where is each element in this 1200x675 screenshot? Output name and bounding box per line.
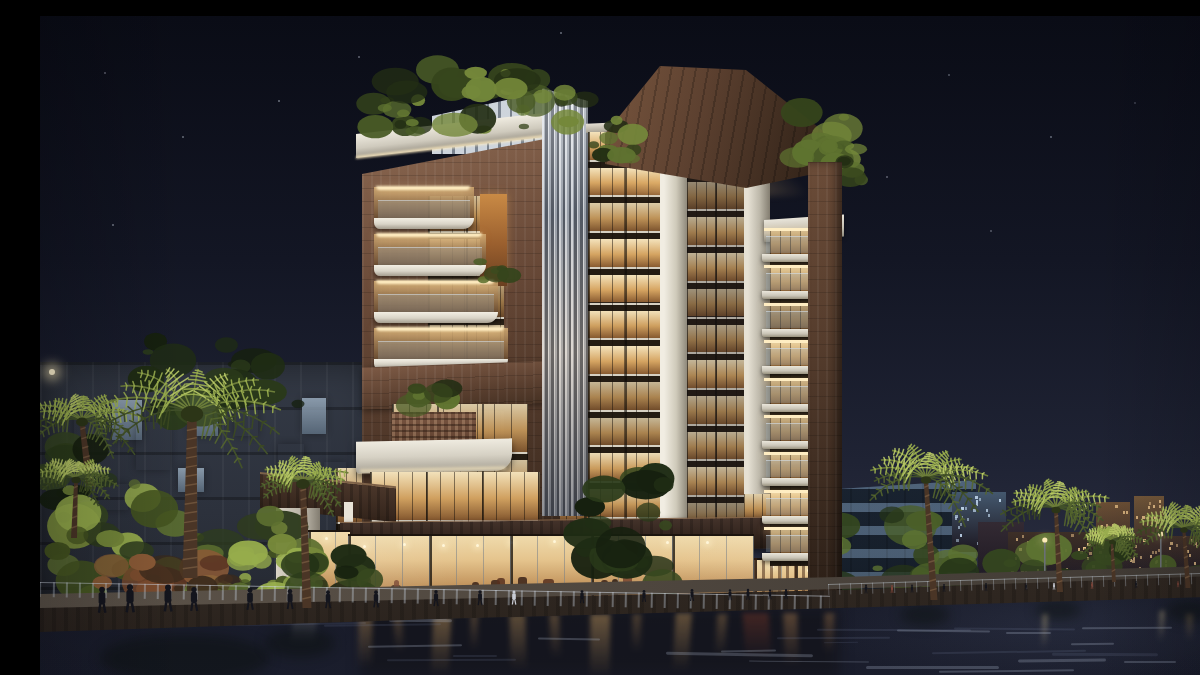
pedestrian-head — [865, 584, 867, 586]
pedestrian — [911, 585, 913, 593]
pedestrian-body — [191, 592, 197, 604]
pedestrian-head — [581, 590, 584, 593]
light-reflection-streak — [509, 614, 526, 670]
pedestrian-body — [1091, 583, 1093, 586]
pedestrian-leg — [132, 603, 134, 613]
pedestrian — [747, 589, 750, 600]
pedestrian — [191, 587, 197, 611]
pedestrian-leg — [515, 600, 516, 605]
light-reflection-streak — [632, 614, 642, 652]
pedestrian-head — [643, 590, 646, 593]
palm-reflection — [900, 604, 950, 626]
pedestrian — [434, 590, 438, 606]
pedestrian — [287, 589, 292, 609]
pedestrian-head — [288, 589, 292, 593]
pedestrian-body — [769, 591, 772, 596]
pedestrian-head — [191, 587, 196, 592]
lamp-light — [49, 369, 55, 375]
pedestrian-leg — [731, 596, 732, 600]
pedestrian-head — [1091, 582, 1093, 584]
pedestrian-head — [165, 584, 171, 590]
pedestrian-body — [1053, 584, 1055, 587]
pedestrian-body — [943, 586, 945, 590]
pedestrian-body — [374, 594, 378, 602]
pedestrian — [1091, 582, 1093, 589]
pedestrian — [785, 589, 788, 599]
pedestrian — [891, 585, 893, 593]
pedestrian-head — [785, 589, 787, 591]
pedestrian-body — [1177, 582, 1179, 585]
pedestrian-leg — [771, 596, 772, 599]
pedestrian — [642, 590, 645, 602]
pedestrian-leg — [104, 604, 106, 613]
pedestrian-body — [512, 593, 516, 600]
pedestrian — [126, 584, 133, 612]
pedestrian-head — [747, 589, 749, 591]
pedestrian-body — [326, 594, 331, 603]
pedestrian-leg — [165, 602, 166, 611]
pedestrian-head — [1053, 583, 1055, 585]
pedestrian-leg — [987, 588, 988, 591]
pedestrian — [943, 584, 945, 592]
pedestrian-head — [434, 590, 438, 594]
pedestrian-body — [99, 592, 106, 604]
pedestrian-leg — [99, 604, 100, 613]
pedestrian-body — [865, 586, 867, 590]
pedestrian — [690, 589, 693, 601]
ripple-line — [1006, 632, 1051, 634]
pedestrian-head — [248, 588, 253, 593]
pedestrian-leg — [329, 602, 330, 608]
pedestrian-leg — [867, 590, 868, 593]
pedestrian-leg — [196, 603, 198, 611]
pedestrian-head — [326, 590, 330, 594]
light-reflection-streak — [549, 614, 561, 658]
pedestrian-leg — [326, 602, 327, 608]
pedestrian-head — [729, 589, 731, 591]
pedestrian-body — [1135, 582, 1137, 585]
pedestrian-head — [478, 590, 481, 593]
pedestrian-body — [287, 593, 292, 603]
pedestrian-leg — [691, 597, 692, 601]
pedestrian-leg — [945, 589, 946, 592]
pedestrian-leg — [377, 602, 378, 608]
pedestrian — [985, 583, 987, 591]
pedestrian-leg — [478, 600, 479, 605]
pedestrian-head — [512, 591, 515, 594]
pedestrian — [729, 589, 732, 600]
pedestrian-leg — [787, 596, 788, 599]
pedestrian-leg — [247, 602, 248, 609]
pedestrian-head — [127, 584, 133, 590]
palm-reflection — [100, 634, 270, 675]
pedestrian-leg — [747, 596, 748, 600]
pedestrian-leg — [583, 599, 584, 603]
pedestrian-leg — [749, 596, 750, 600]
pedestrian-body — [434, 593, 438, 601]
pedestrian-head — [911, 585, 913, 587]
pedestrian — [1177, 581, 1179, 587]
pedestrian — [769, 589, 772, 599]
pedestrian-leg — [769, 596, 770, 599]
pedestrian-leg — [291, 602, 292, 609]
pedestrian-body — [247, 592, 253, 603]
pedestrian-body — [478, 593, 482, 600]
pedestrian-leg — [288, 602, 289, 609]
pedestrian-leg — [643, 598, 644, 602]
pedestrian-head — [1177, 581, 1178, 582]
pedestrian — [326, 590, 331, 608]
pedestrian-leg — [893, 590, 894, 593]
pedestrian-body — [891, 587, 893, 591]
architectural-render: Night-time architectural rendering of a … — [40, 16, 1200, 675]
pedestrian-leg — [729, 596, 730, 600]
pedestrian-body — [1025, 585, 1027, 588]
pedestrian-leg — [693, 597, 694, 601]
ripple-line — [1082, 627, 1172, 629]
pedestrian-leg — [191, 603, 192, 611]
pedestrian-body — [985, 585, 987, 589]
pedestrian-leg — [913, 590, 914, 593]
pedestrian — [512, 591, 516, 605]
pedestrian-leg — [434, 601, 435, 606]
pedestrian — [580, 590, 583, 603]
pedestrian-leg — [437, 601, 438, 606]
pedestrian-body — [729, 591, 732, 596]
palm-reflection — [1035, 600, 1081, 620]
pedestrian-body — [785, 591, 788, 596]
pedestrian-leg — [645, 598, 646, 602]
pedestrian-head — [1025, 583, 1027, 585]
pedestrian-leg — [512, 600, 513, 605]
light-reflection-streak — [590, 614, 611, 675]
pedestrian — [247, 588, 253, 610]
light-reflection-streak — [824, 613, 835, 653]
pedestrian-body — [911, 586, 913, 590]
pedestrian-leg — [170, 602, 172, 611]
pedestrian-head — [985, 583, 987, 585]
pedestrian-head — [891, 585, 893, 587]
pedestrian-leg — [127, 603, 128, 613]
pedestrian-body — [126, 590, 133, 603]
pedestrian-body — [747, 591, 750, 596]
pedestrian-leg — [251, 602, 252, 609]
ripple-line — [1071, 643, 1114, 645]
pedestrian-body — [580, 593, 583, 599]
pedestrian — [1025, 583, 1027, 590]
pedestrian — [99, 587, 106, 613]
pedestrian-head — [943, 584, 945, 586]
pedestrian — [865, 584, 867, 593]
pedestrian-body — [642, 592, 645, 598]
pedestrian — [478, 590, 482, 605]
pedestrian — [164, 584, 171, 611]
pedestrian-body — [164, 590, 171, 603]
pedestrian — [1053, 583, 1055, 590]
pedestrian-leg — [580, 599, 581, 603]
pedestrian-leg — [785, 596, 786, 599]
pedestrian-leg — [481, 600, 482, 605]
pedestrian-head — [374, 590, 378, 594]
pedestrian-head — [691, 589, 694, 592]
palm-reflection — [265, 628, 335, 658]
pedestrian-head — [99, 587, 105, 593]
pedestrians — [40, 16, 1200, 675]
pedestrian — [374, 590, 378, 607]
pedestrian-head — [1135, 581, 1137, 583]
light-reflection-streak — [470, 614, 479, 650]
pedestrian — [1135, 581, 1137, 588]
ripple-line — [866, 666, 999, 669]
pedestrian-body — [690, 591, 693, 597]
pedestrian-head — [769, 589, 771, 591]
pedestrian-leg — [374, 602, 375, 608]
